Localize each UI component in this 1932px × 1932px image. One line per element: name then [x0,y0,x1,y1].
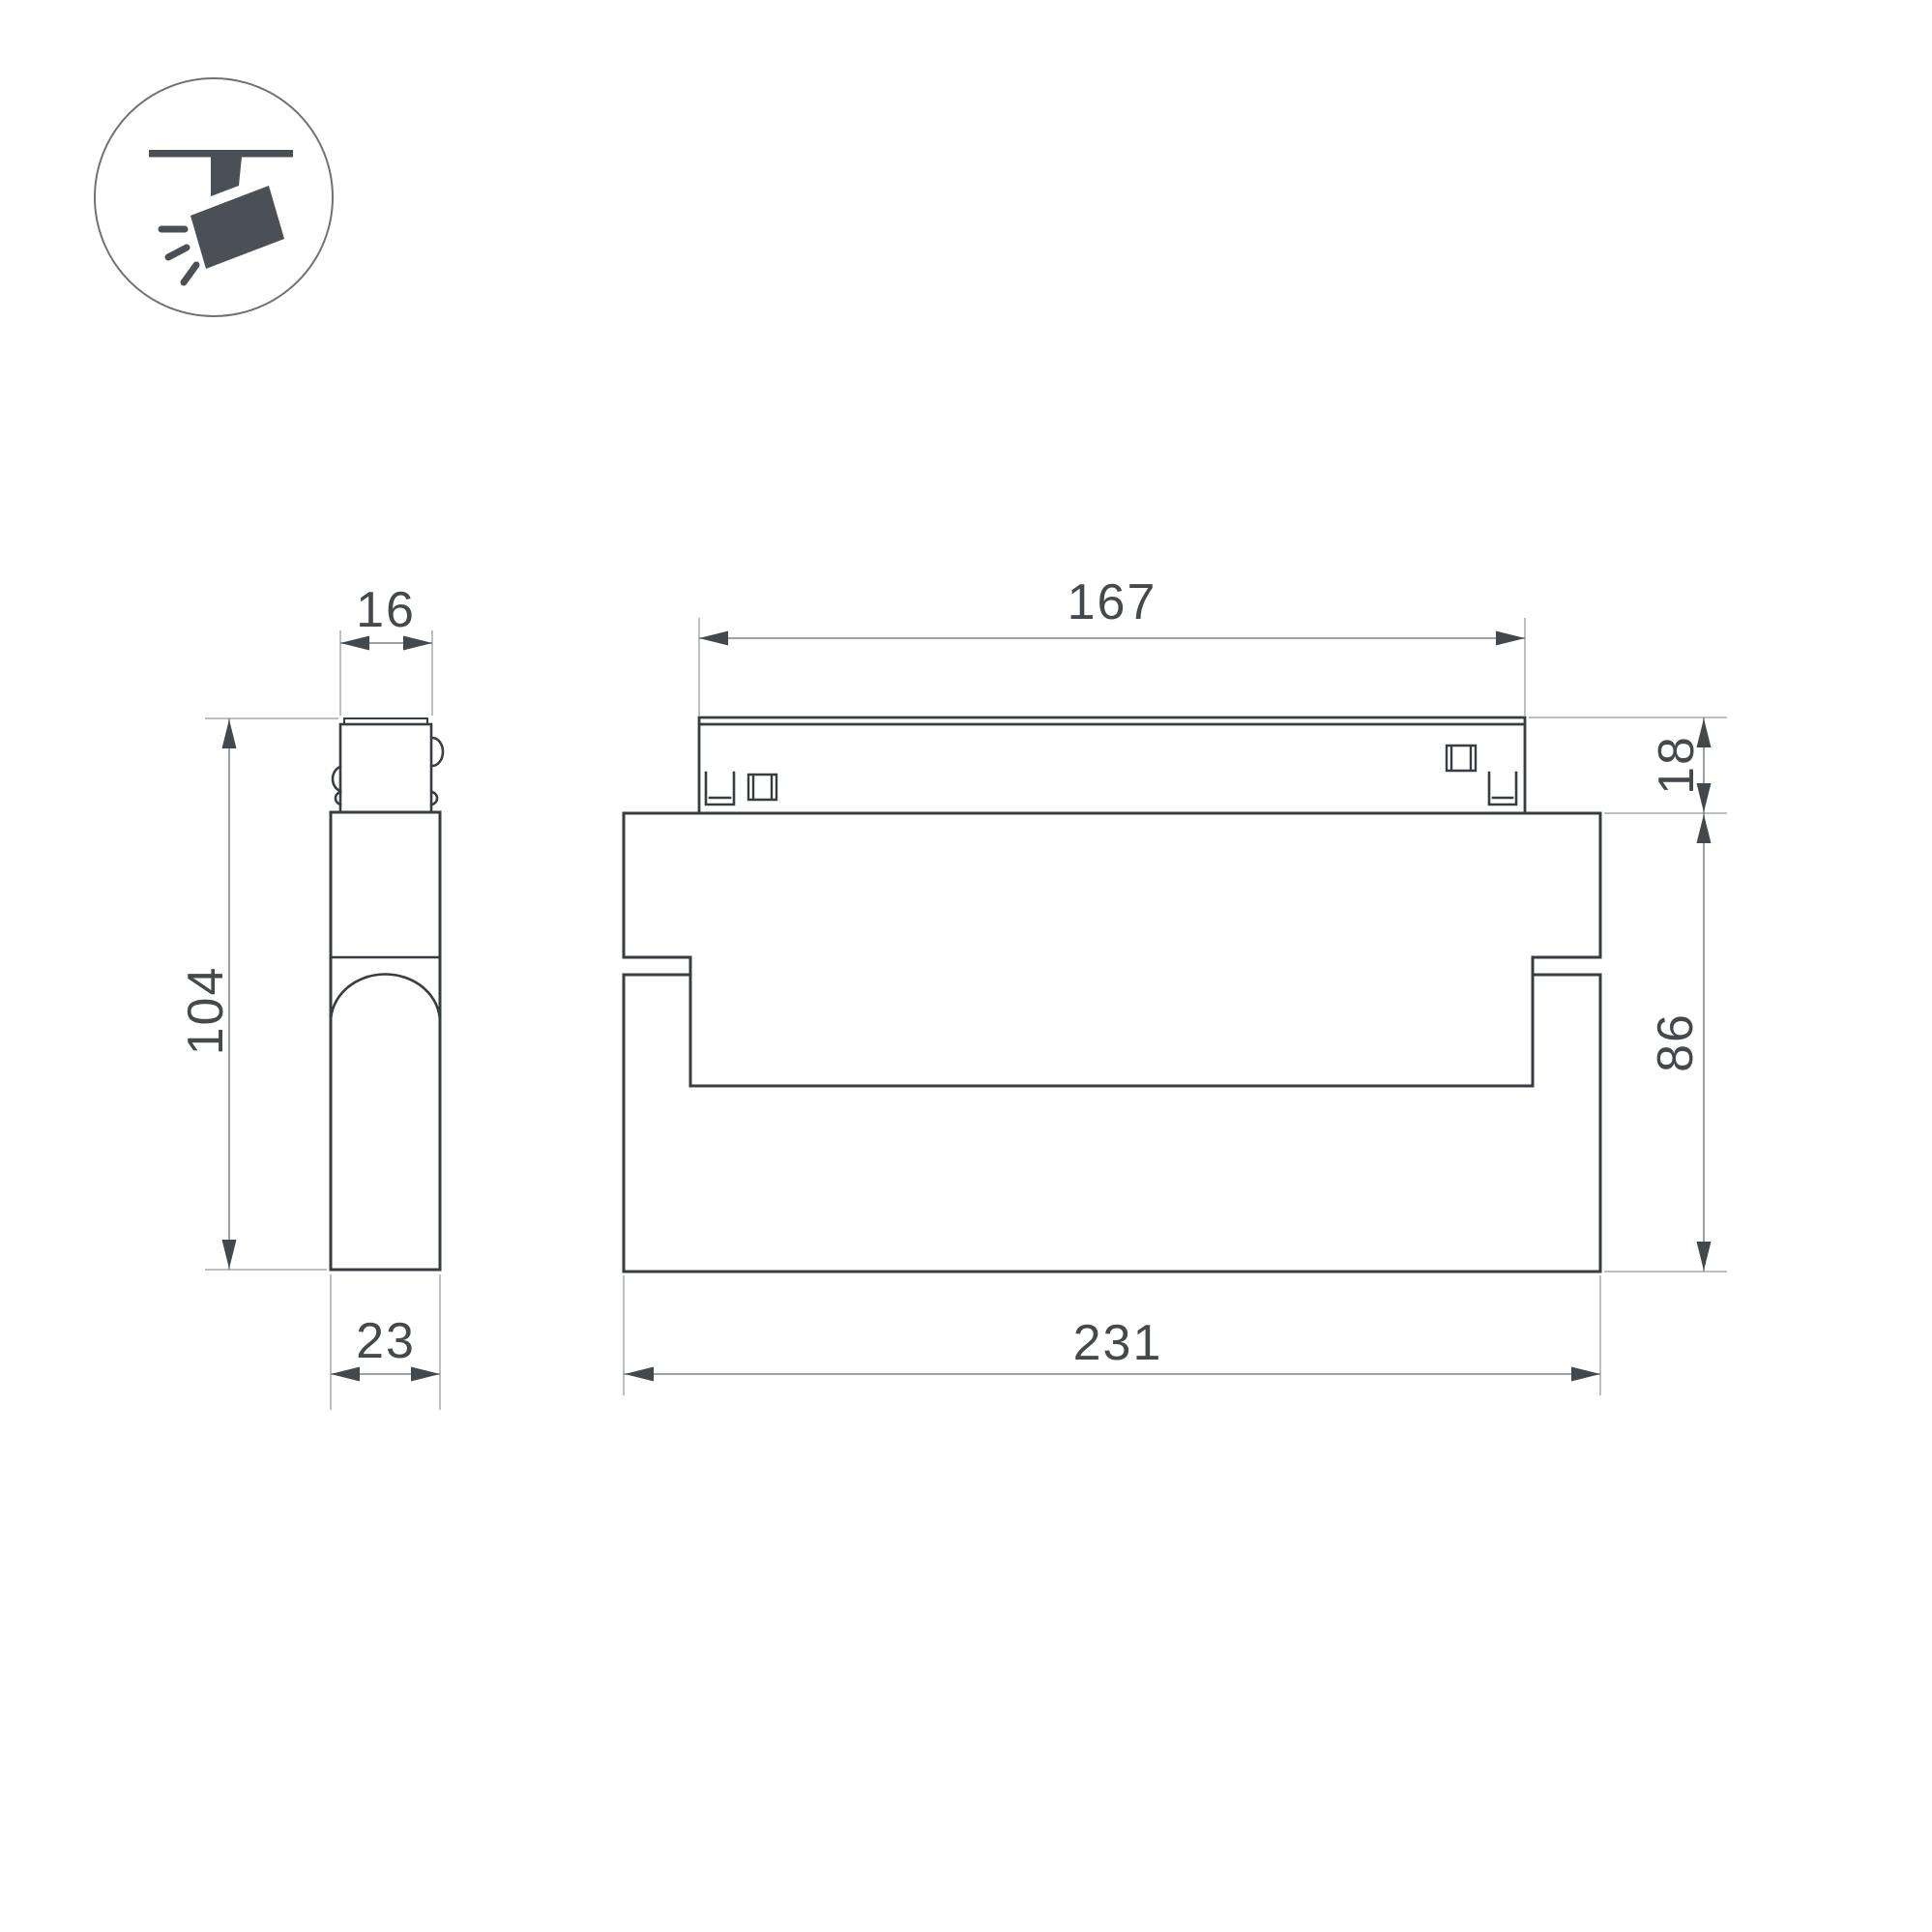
contact-clip-u [706,773,734,805]
spring-clip-bump [432,792,437,805]
contact-clip-u [1489,773,1516,805]
arrow-up [222,719,237,748]
ceiling-line [149,150,293,158]
side-body-outline [331,812,440,1270]
track-adapter-body [340,724,431,812]
dim-label-side-top-width: 16 [356,582,416,638]
dim-label-front-top-height: 18 [1649,735,1705,795]
dim-label-side-depth: 23 [356,1313,416,1369]
light-ray [184,265,196,282]
dimension-arrows [222,631,1712,1382]
arrow-left [625,1367,654,1382]
spotlight-stem [211,157,242,196]
spring-clip-bump [432,738,443,766]
side-view [331,718,443,1270]
arrow-down [222,1240,237,1269]
dim-label-front-body-height: 86 [1648,1012,1704,1072]
track-base-section [699,717,1525,813]
arrow-right [1496,631,1525,646]
contact-clip-square [1447,746,1476,771]
dimension-lines [229,638,1704,1374]
spotlight-glyph [149,150,293,269]
dim-label-front-top-width: 167 [1068,574,1157,630]
spotlight-head [190,186,284,269]
dimension-drawing-canvas: 16 104 23 167 18 86 231 [0,0,1932,1932]
front-view [624,717,1600,1272]
light-rays-icon [161,229,196,282]
arrow-left [699,631,728,646]
front-body-outline [624,813,1600,1272]
track-spotlight-icon [95,78,333,316]
contact-clip-square [748,775,776,800]
technical-drawing-page: 16 104 23 167 18 86 231 [0,0,1932,1932]
light-ray [168,248,187,257]
arrow-right [1571,1367,1600,1382]
arrow-up [1697,814,1712,843]
icon-circle-border [95,78,333,316]
dim-label-front-total-width: 231 [1073,1315,1163,1371]
arrow-down [1697,1242,1712,1271]
dim-label-side-height: 104 [178,966,234,1056]
